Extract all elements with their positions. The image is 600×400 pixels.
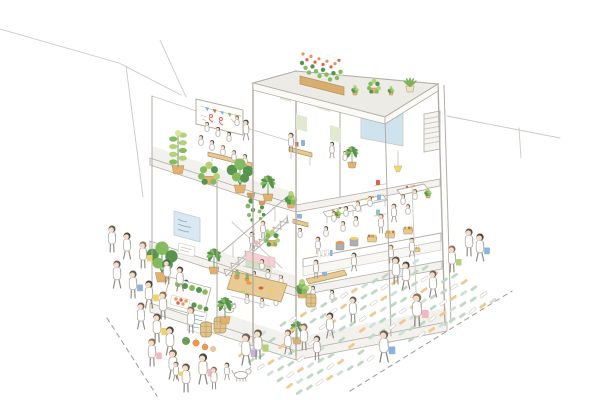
person bbox=[266, 269, 270, 279]
person bbox=[216, 127, 220, 137]
person bbox=[298, 228, 302, 238]
person bbox=[260, 259, 264, 269]
person bbox=[401, 194, 405, 204]
barrel bbox=[306, 294, 316, 307]
person bbox=[235, 116, 239, 126]
person bbox=[205, 122, 209, 132]
produce-basket bbox=[367, 235, 377, 243]
person bbox=[368, 196, 372, 206]
person bbox=[210, 140, 214, 150]
blue-pitcher bbox=[301, 140, 305, 146]
person bbox=[221, 145, 225, 155]
person bbox=[199, 135, 203, 145]
ac-unit bbox=[424, 111, 440, 152]
person bbox=[260, 298, 264, 308]
person bbox=[232, 150, 236, 160]
person bbox=[324, 226, 328, 236]
barrel bbox=[201, 322, 212, 337]
person bbox=[227, 132, 231, 142]
person bbox=[406, 204, 410, 214]
person bbox=[245, 294, 249, 304]
person bbox=[341, 221, 345, 231]
laptop bbox=[297, 214, 302, 219]
illustration-canvas: Hand-drawn watercolour axonometric cutaw… bbox=[0, 0, 600, 400]
person bbox=[356, 201, 360, 211]
person bbox=[413, 189, 417, 199]
building-cutaway-illustration bbox=[0, 0, 600, 400]
person bbox=[354, 216, 358, 226]
produce-basket bbox=[385, 231, 395, 239]
produce-basket bbox=[403, 227, 413, 235]
person bbox=[344, 206, 348, 216]
person bbox=[330, 290, 334, 300]
